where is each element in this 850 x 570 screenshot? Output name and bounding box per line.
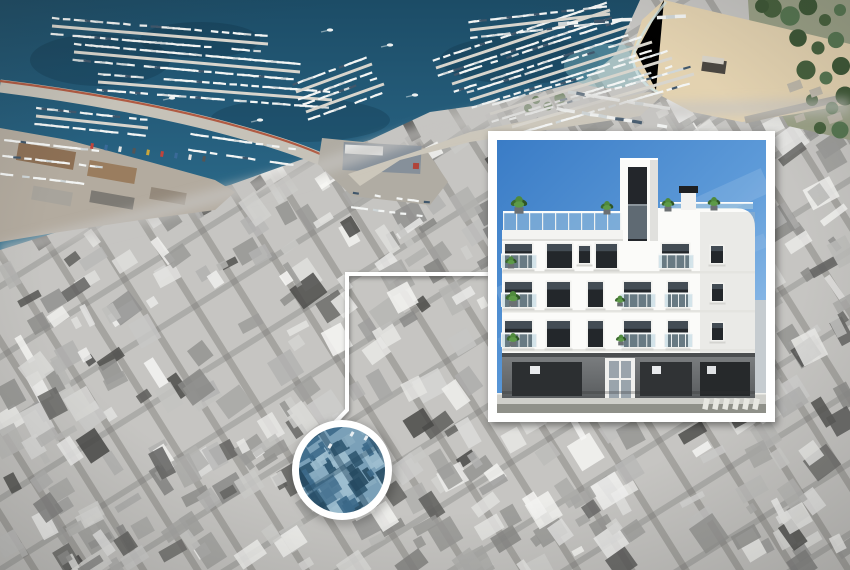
inset-building-render	[488, 131, 775, 422]
scene-canvas	[0, 0, 850, 570]
aerial-map-composite	[0, 0, 850, 570]
